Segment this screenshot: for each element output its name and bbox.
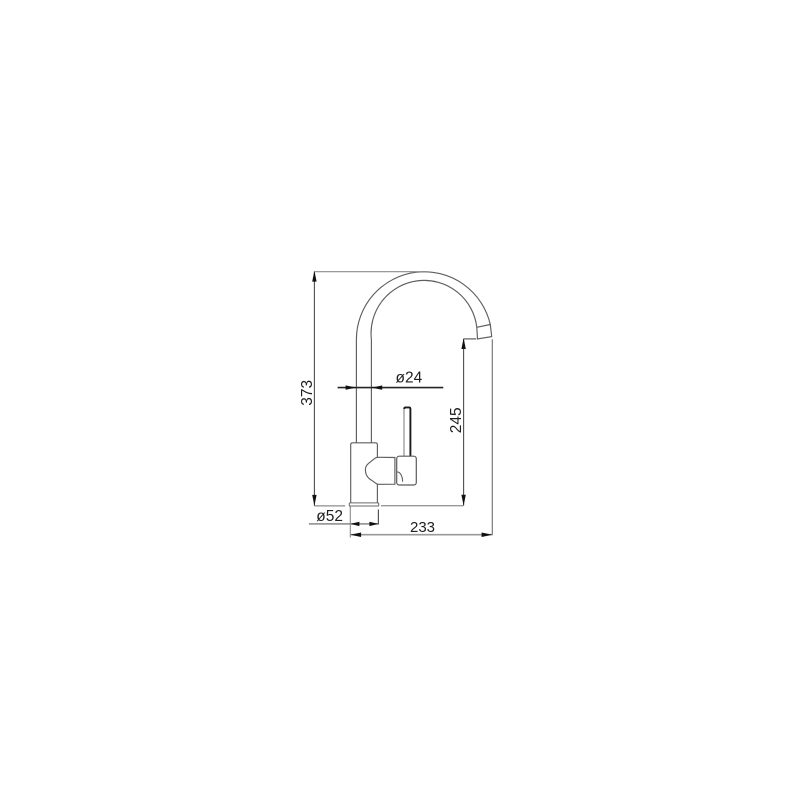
svg-text:ø52: ø52 <box>316 508 343 525</box>
svg-text:ø24: ø24 <box>396 369 423 386</box>
svg-text:373: 373 <box>299 380 316 406</box>
svg-text:245: 245 <box>448 407 465 433</box>
svg-text:233: 233 <box>410 519 435 536</box>
